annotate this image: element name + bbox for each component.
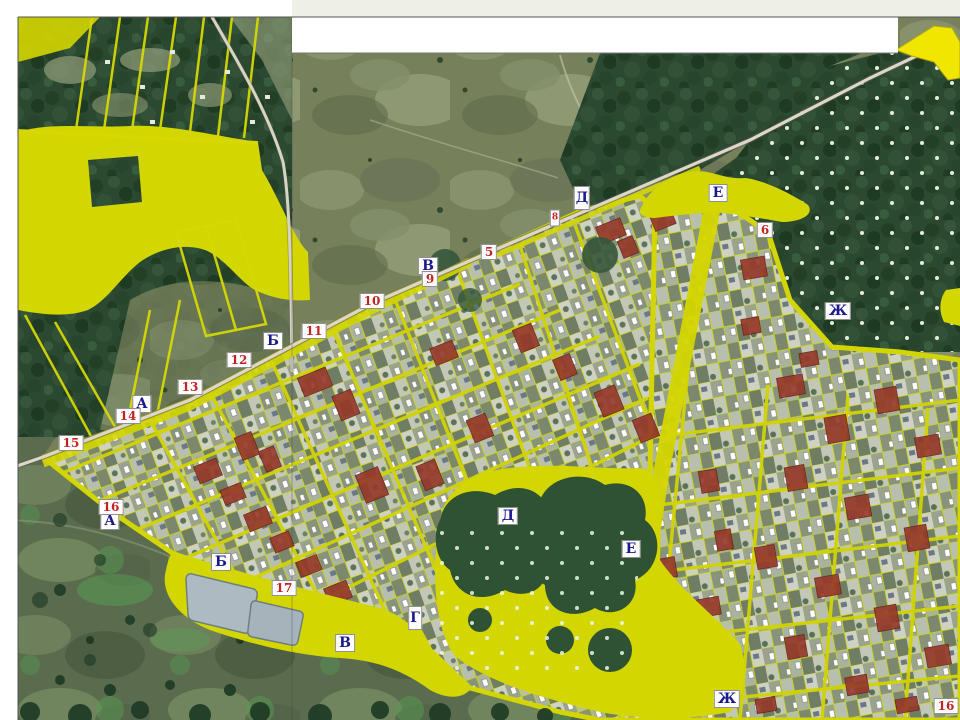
number-label: 14 (116, 408, 141, 424)
letter-label: Б (211, 553, 231, 571)
letter-label: Ж (714, 690, 740, 708)
letter-label: Е (622, 540, 641, 558)
letter-label: Г (408, 606, 422, 630)
number-label: 8 (550, 210, 560, 227)
letter-label: Д (498, 507, 518, 525)
number-label: 6 (757, 222, 773, 238)
number-label: 13 (178, 379, 203, 395)
letter-label: Б (263, 332, 283, 350)
number-label: 10 (360, 293, 385, 309)
number-label: 17 (272, 580, 297, 596)
aerial-map[interactable] (0, 0, 960, 720)
number-label: 16 (934, 698, 959, 714)
number-label: 5 (481, 244, 497, 260)
number-label: 12 (227, 352, 252, 368)
letter-label: Е (709, 184, 728, 202)
number-label: 15 (59, 435, 84, 451)
number-label: 9 (422, 271, 438, 287)
letter-label: В (335, 634, 355, 652)
number-label: 11 (302, 323, 327, 339)
letter-label: Ж (825, 302, 851, 320)
map-viewport: Д Е Ж В Б А А Б В Г Д Е Ж 5 6 8 9 10 11 … (0, 0, 960, 720)
letter-label: Д (574, 186, 590, 210)
number-label: 16 (99, 499, 124, 515)
